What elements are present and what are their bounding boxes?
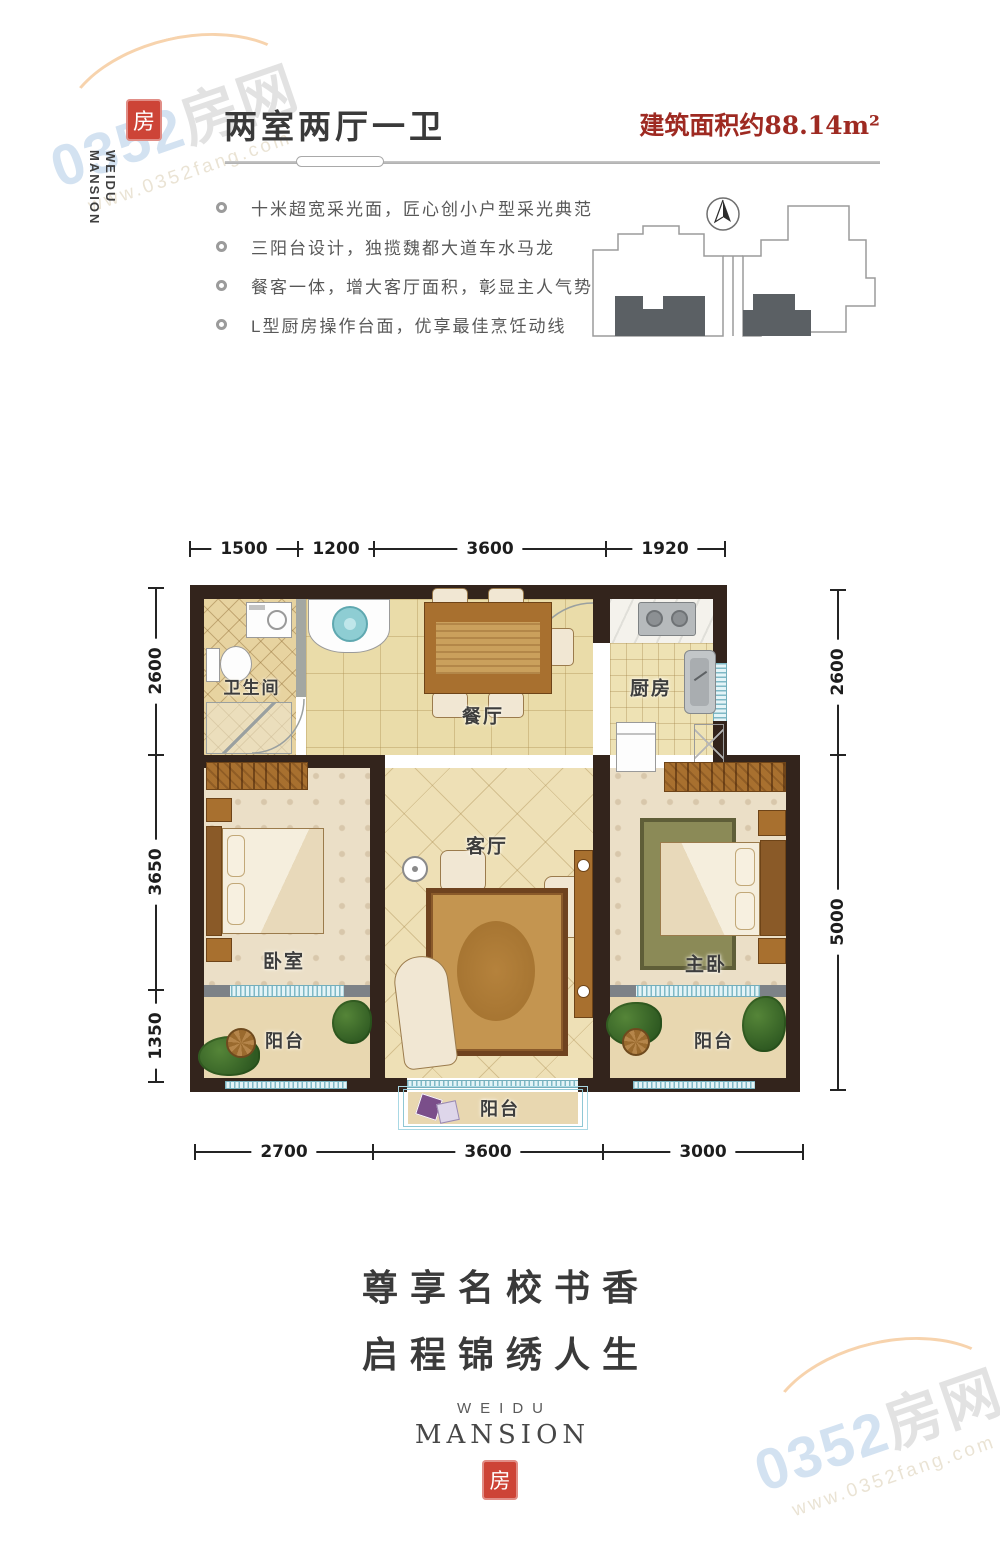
dim-tick <box>373 541 375 557</box>
dim-tick <box>830 589 846 591</box>
bed-headboard <box>760 840 786 936</box>
wall <box>786 755 800 1092</box>
bullet-ring-icon <box>216 202 227 213</box>
pillow <box>227 883 245 925</box>
slogan-line1: 尊享名校书香 <box>0 1259 1000 1311</box>
dim-value: 1500 <box>211 539 276 559</box>
brand-logo-line1: WEIDU <box>102 150 118 225</box>
dim-tick <box>194 1144 196 1160</box>
header-divider-capsule <box>296 156 384 167</box>
balcony-table <box>226 1028 256 1058</box>
dim-value: 2600 <box>146 638 166 703</box>
footer-seal-icon: 房 <box>482 1460 518 1500</box>
dim-value: 2600 <box>828 639 848 704</box>
fridge-divider <box>617 733 655 735</box>
room-label-balcony-bottom: 阳台 <box>480 1095 520 1121</box>
washer-controls <box>249 605 265 610</box>
balcony-left-window <box>225 1081 347 1089</box>
dim-tick <box>148 1081 164 1083</box>
bullet-ring-icon <box>216 241 227 252</box>
refrigerator <box>616 722 656 772</box>
kitchen-sink <box>684 650 716 714</box>
bedroom-wardrobe <box>206 762 308 790</box>
burner-icon <box>646 610 663 627</box>
dim-tick <box>148 754 164 756</box>
wall <box>713 585 727 663</box>
dim-value: 3600 <box>455 1142 520 1162</box>
dim-value: 2700 <box>251 1142 316 1162</box>
brand-seal-icon: 房 <box>126 99 162 141</box>
room-label-kitchen: 厨房 <box>630 674 672 701</box>
dining-table-top <box>436 622 540 674</box>
feature-item: L型厨房操作台面，优享最佳烹饪动线 <box>216 313 593 335</box>
dim-value: 3650 <box>146 839 166 904</box>
feature-text: 十米超宽采光面，匠心创小户型采光典范 <box>251 195 593 220</box>
floorplan-poster-page: { "watermark": { "brand": "0352房网", "url… <box>0 0 1000 1513</box>
window-end-cap <box>610 985 636 997</box>
footer-brand-line1: WEIDU <box>0 1400 1000 1417</box>
dim-tick <box>297 541 299 557</box>
wash-basin <box>332 606 368 642</box>
nightstand <box>206 798 232 822</box>
washer-door-icon <box>267 610 287 630</box>
balcony-plant <box>742 996 786 1052</box>
feature-text: L型厨房操作台面，优享最佳烹饪动线 <box>251 312 566 337</box>
feature-text: 餐客一体，增大客厅面积，彰显主人气势 <box>251 273 593 298</box>
room-label-living: 客厅 <box>466 832 508 859</box>
dim-value: 1920 <box>632 539 697 559</box>
decor-plate-icon <box>577 985 590 998</box>
bullet-ring-icon <box>216 280 227 291</box>
balcony-plant <box>332 1000 372 1044</box>
dining-table <box>424 602 552 694</box>
dim-tick <box>802 1144 804 1160</box>
site-plan <box>583 190 883 342</box>
master-bed <box>660 842 760 936</box>
brand-seal-glyph: 房 <box>133 104 155 136</box>
decor-pillow <box>436 1100 460 1124</box>
dim-value: 1350 <box>146 1003 166 1068</box>
dim-tick <box>602 1144 604 1160</box>
decor-plate-icon <box>577 859 590 872</box>
dim-tick <box>724 541 726 557</box>
pillow <box>735 848 755 886</box>
balcony-table <box>622 1028 650 1056</box>
lamp-center <box>412 866 418 872</box>
window-end-cap <box>344 985 370 997</box>
washing-machine <box>246 602 292 638</box>
room-label-master: 主卧 <box>685 950 727 977</box>
bathroom-door-arc <box>250 697 306 755</box>
building-area-text: 建筑面积约88.14m² <box>639 106 880 142</box>
floor-lamp-icon <box>402 856 428 882</box>
bathroom-partition-wall <box>296 599 306 697</box>
sink-basin <box>690 658 709 706</box>
dim-value: 1200 <box>303 539 368 559</box>
feature-list: 十米超宽采光面，匠心创小户型采光典范 三阳台设计，独揽魏都大道车水马龙 餐客一体… <box>216 196 593 352</box>
window-end-cap <box>204 985 230 997</box>
brand-vertical-logo: WEIDU MANSION <box>86 150 118 225</box>
dim-tick <box>830 754 846 756</box>
feature-item: 十米超宽采光面，匠心创小户型采光典范 <box>216 196 593 218</box>
dim-tick <box>148 989 164 991</box>
tv-cabinet <box>574 850 593 1018</box>
slogan-line2: 启程锦绣人生 <box>0 1326 1000 1378</box>
dim-tick <box>148 587 164 589</box>
nightstand <box>758 810 786 836</box>
bullet-ring-icon <box>216 319 227 330</box>
wall <box>190 585 204 1092</box>
nightstand <box>206 938 232 962</box>
dim-tick <box>189 541 191 557</box>
dim-tick <box>605 541 607 557</box>
brand-logo-line2: MANSION <box>86 150 102 225</box>
rug-oval <box>457 921 535 1021</box>
feature-text: 三阳台设计，独揽魏都大道车水马龙 <box>251 234 555 259</box>
dim-tick <box>372 1144 374 1160</box>
wall <box>370 755 385 1078</box>
bed-headboard <box>206 826 222 936</box>
room-label-balcony-right: 阳台 <box>694 1027 734 1053</box>
feature-item: 三阳台设计，独揽魏都大道车水马龙 <box>216 235 593 257</box>
master-wardrobe <box>664 762 786 792</box>
bedroom-bed <box>222 828 324 934</box>
wall <box>593 585 610 643</box>
room-label-bathroom: 卫生间 <box>224 674 281 699</box>
footer-seal-glyph: 房 <box>490 1465 511 1495</box>
stove <box>638 602 696 636</box>
room-label-bedroom: 卧室 <box>263 947 305 974</box>
highlighted-unit-left <box>615 296 705 336</box>
dim-value: 3000 <box>670 1142 735 1162</box>
highlighted-unit-right <box>743 294 811 336</box>
toilet-tank <box>206 648 220 682</box>
pillow <box>227 835 245 877</box>
compass-north-icon <box>707 198 739 230</box>
burner-icon <box>671 610 688 627</box>
pillow <box>735 892 755 930</box>
balcony-right-window <box>633 1081 755 1089</box>
dim-tick <box>830 1089 846 1091</box>
nightstand <box>758 938 786 964</box>
dim-value: 3600 <box>457 539 522 559</box>
dim-value: 5000 <box>828 889 848 954</box>
room-label-balcony-left: 阳台 <box>265 1027 305 1053</box>
footer-brand-line2: MANSION <box>0 1420 1000 1450</box>
duct-shaft <box>694 724 724 764</box>
page-title: 两室两厅一卫 <box>224 100 446 148</box>
room-label-dining: 餐厅 <box>462 702 504 729</box>
feature-item: 餐客一体，增大客厅面积，彰显主人气势 <box>216 274 593 296</box>
basin-drain <box>344 618 356 630</box>
